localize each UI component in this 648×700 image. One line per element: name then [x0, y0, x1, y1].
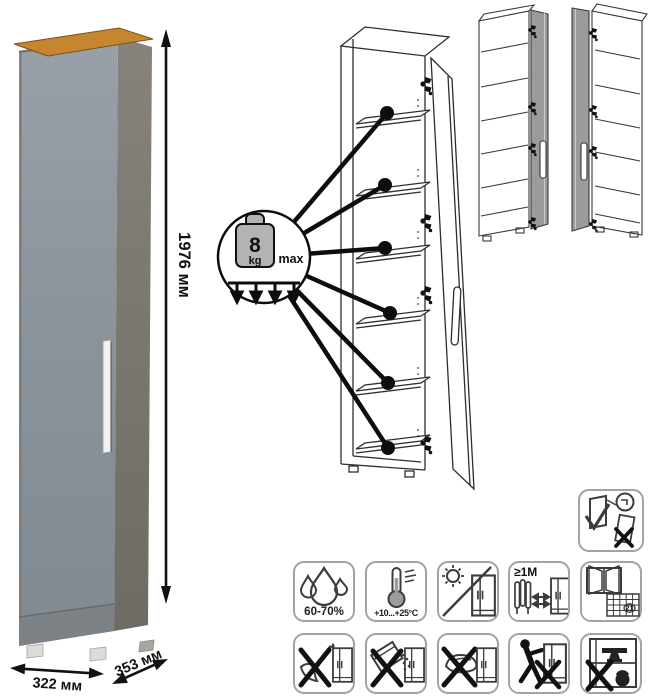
- no-abrasive-powder-icon: [365, 633, 427, 694]
- variant-a-handle: [540, 141, 546, 178]
- left-cabinet-render: [14, 28, 154, 661]
- anvil-glyph: [602, 648, 627, 662]
- foot-mark-right: [405, 471, 414, 477]
- no-direct-sunlight-icon: [437, 561, 499, 622]
- arrowhead-up: [161, 29, 171, 47]
- pin-holes: [417, 99, 419, 437]
- kettlebell-glyph: [616, 671, 630, 686]
- no-dragging-icon: [508, 633, 570, 694]
- interior-floor: [353, 456, 421, 462]
- shelf-load-badge: 8 kg max: [218, 211, 310, 303]
- load-weight-unit: kg: [249, 255, 262, 267]
- carcass-top: [341, 27, 449, 56]
- temperature-icon: +10...+25°C: [365, 561, 427, 622]
- width-dimension: 322 мм: [10, 664, 104, 695]
- tech-drawing: [341, 27, 474, 489]
- bottom-front-edge: [341, 464, 425, 470]
- ventilation-calendar-icon: 21: [580, 561, 642, 622]
- door-handle: [103, 340, 111, 453]
- temperature-label: +10...+25°C: [367, 609, 425, 618]
- variant-door-right-hinged: [479, 5, 548, 241]
- humidity-label: 60-70%: [295, 607, 353, 619]
- arrowhead-down: [161, 586, 171, 604]
- variant-b-handle: [581, 143, 587, 180]
- cabinet-side-face: [114, 37, 152, 631]
- no-wet-cloth-icon: [437, 633, 499, 694]
- height-dimension: 1976 мм: [161, 29, 193, 604]
- humidity-icon: 60-70%: [293, 561, 355, 622]
- foot-mark-left: [349, 466, 358, 472]
- hinges: [420, 77, 432, 454]
- shelves: [356, 110, 430, 453]
- heat-distance-label: ≥1М: [514, 565, 537, 579]
- height-label: 1976 мм: [175, 232, 193, 298]
- secure-to-wall-icon: [578, 489, 644, 552]
- open-door: [431, 58, 474, 489]
- variant-door-left-hinged: [572, 4, 647, 237]
- heat-distance-icon: ≥1М: [508, 561, 570, 622]
- shelf-pointer-dots: [378, 106, 397, 455]
- foot-right: [90, 647, 106, 661]
- no-heavy-load-icon: [580, 633, 642, 694]
- product-sheet: 1976 мм 322 мм 353 мм: [0, 0, 648, 700]
- load-weight-value: 8: [249, 234, 261, 257]
- foot-left: [27, 644, 43, 658]
- calendar-day-label: 21: [626, 606, 634, 613]
- depth-label: 353 мм: [112, 646, 164, 680]
- width-label: 322 мм: [32, 675, 83, 694]
- no-sharp-tools-icon: [293, 633, 355, 694]
- load-max-label: max: [278, 252, 303, 266]
